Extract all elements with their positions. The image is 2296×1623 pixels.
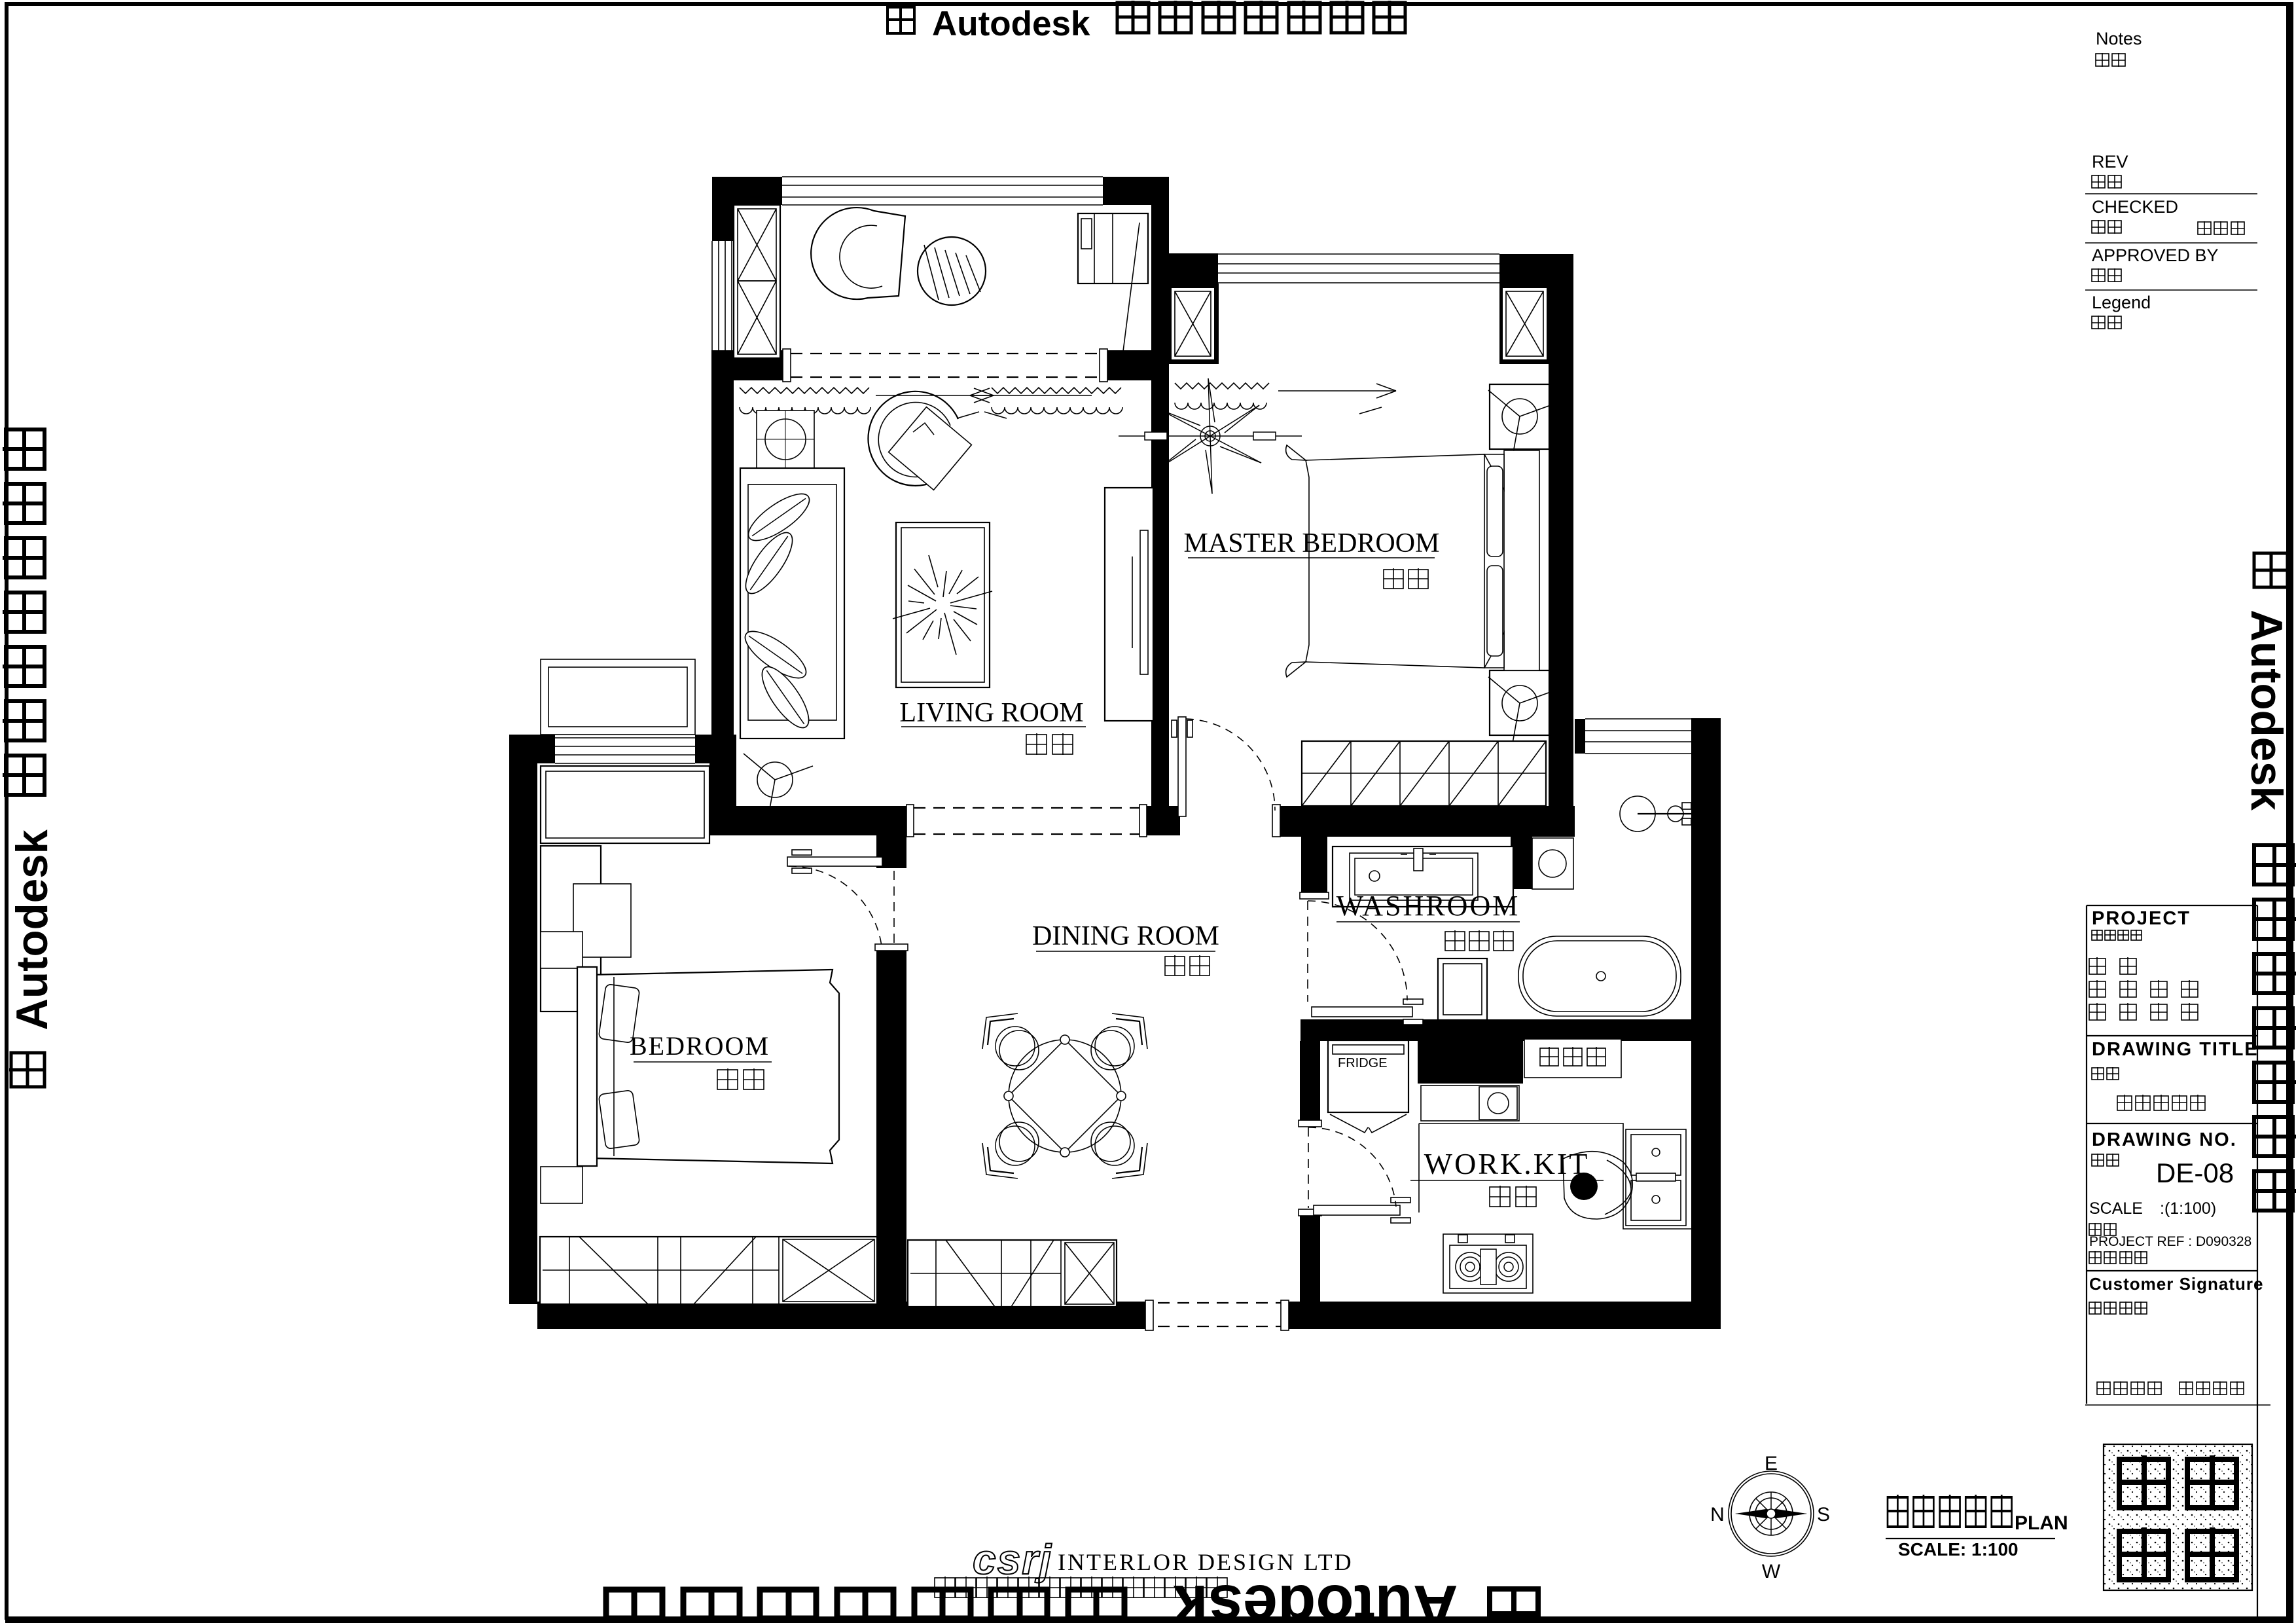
svg-text:INTERLOR DESIGN LTD: INTERLOR DESIGN LTD xyxy=(1058,1549,1354,1575)
svg-text:S: S xyxy=(1817,1504,1830,1525)
svg-text:Legend: Legend xyxy=(2092,293,2151,312)
svg-text:REV: REV xyxy=(2092,152,2128,172)
svg-text:WORK.KIT: WORK.KIT xyxy=(1424,1147,1590,1180)
svg-text:W: W xyxy=(1762,1561,1781,1582)
svg-text:DE-08: DE-08 xyxy=(2156,1158,2234,1188)
svg-text:DRAWING TITLE: DRAWING TITLE xyxy=(2092,1039,2259,1060)
svg-text:FRIDGE: FRIDGE xyxy=(1338,1056,1388,1070)
svg-text:E: E xyxy=(1765,1453,1778,1474)
svg-text:Autodesk: Autodesk xyxy=(8,829,57,1030)
svg-text:SCALE: 1:100: SCALE: 1:100 xyxy=(1898,1539,2018,1559)
svg-text:SCALE: SCALE xyxy=(2089,1199,2143,1218)
svg-text:MASTER BEDROOM: MASTER BEDROOM xyxy=(1184,528,1440,558)
svg-text::(1:100): :(1:100) xyxy=(2160,1199,2216,1218)
svg-text:APPROVED BY: APPROVED BY xyxy=(2092,246,2219,265)
svg-text:CHECKED: CHECKED xyxy=(2092,197,2178,217)
svg-text:Notes: Notes xyxy=(2096,29,2142,48)
svg-text:Autodesk: Autodesk xyxy=(2242,610,2291,811)
svg-text:PROJECT: PROJECT xyxy=(2092,908,2191,929)
svg-text:WASHROOM: WASHROOM xyxy=(1336,890,1520,922)
svg-text:csrj: csrj xyxy=(973,1536,1052,1583)
svg-text:DRAWING NO.: DRAWING NO. xyxy=(2092,1129,2237,1150)
svg-text:Customer Signature: Customer Signature xyxy=(2089,1274,2264,1294)
svg-text:BEDROOM: BEDROOM xyxy=(630,1031,770,1061)
svg-text:Autodesk: Autodesk xyxy=(932,5,1090,43)
svg-text:PLAN: PLAN xyxy=(2015,1512,2068,1534)
svg-text:LIVING ROOM: LIVING ROOM xyxy=(899,698,1083,728)
svg-text:N: N xyxy=(1710,1504,1725,1525)
svg-text:DINING ROOM: DINING ROOM xyxy=(1032,921,1219,951)
svg-text:PROJECT REF : D090328: PROJECT REF : D090328 xyxy=(2089,1234,2251,1249)
